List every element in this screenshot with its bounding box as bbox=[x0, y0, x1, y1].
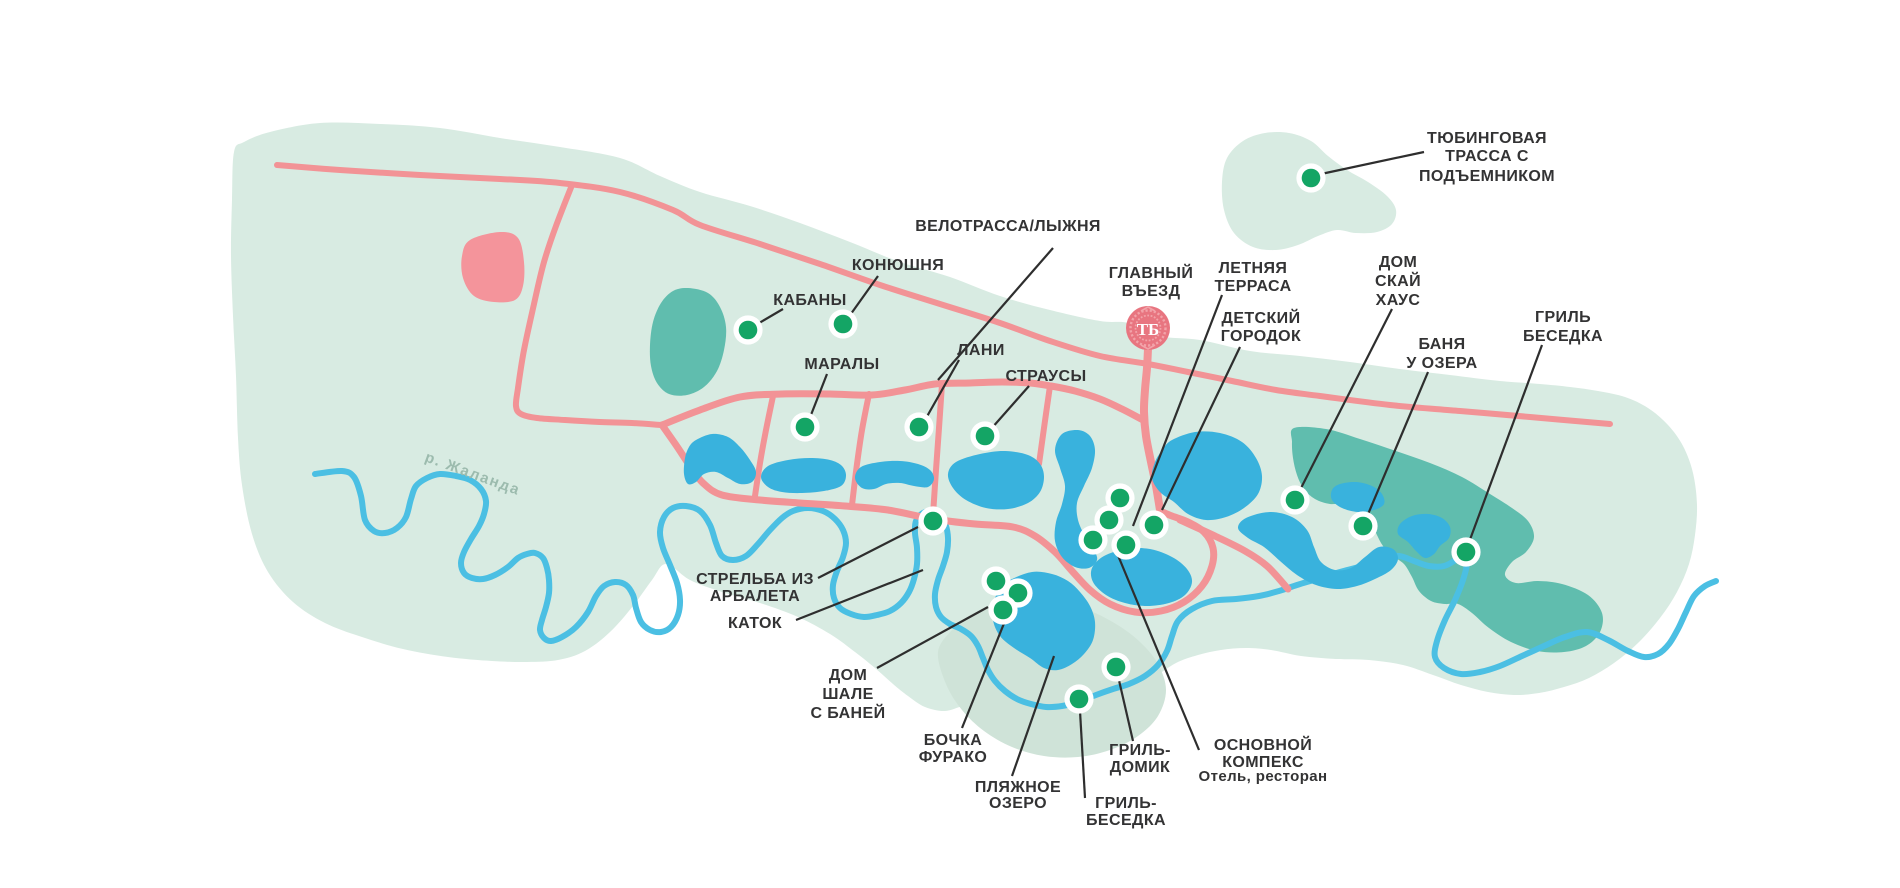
svg-text:ГРИЛЬ-: ГРИЛЬ- bbox=[1109, 742, 1171, 759]
svg-text:ВЪЕЗД: ВЪЕЗД bbox=[1122, 283, 1181, 300]
svg-text:ТБ: ТБ bbox=[1137, 320, 1160, 339]
svg-text:БАНЯ: БАНЯ bbox=[1418, 336, 1465, 353]
svg-text:ФУРАКО: ФУРАКО bbox=[919, 749, 987, 766]
svg-text:ГЛАВНЫЙ: ГЛАВНЫЙ bbox=[1109, 263, 1194, 282]
svg-text:ОЗЕРО: ОЗЕРО bbox=[989, 795, 1047, 812]
svg-text:ГОРОДОК: ГОРОДОК bbox=[1221, 328, 1301, 345]
svg-text:СКАЙ: СКАЙ bbox=[1375, 271, 1421, 290]
svg-text:ЛАНИ: ЛАНИ bbox=[957, 342, 1004, 359]
svg-text:БОЧКА: БОЧКА bbox=[924, 732, 983, 749]
svg-text:СТРЕЛЬБА ИЗ: СТРЕЛЬБА ИЗ bbox=[696, 571, 814, 588]
svg-text:С БАНЕЙ: С БАНЕЙ bbox=[811, 703, 886, 722]
svg-text:КАБАНЫ: КАБАНЫ bbox=[773, 292, 846, 309]
svg-text:ХАУС: ХАУС bbox=[1376, 292, 1421, 309]
svg-text:ОСНОВНОЙ: ОСНОВНОЙ bbox=[1214, 735, 1312, 754]
svg-text:ТЕРРАСА: ТЕРРАСА bbox=[1214, 278, 1291, 295]
svg-text:ДОМИК: ДОМИК bbox=[1110, 759, 1170, 776]
svg-text:ГРИЛЬ: ГРИЛЬ bbox=[1535, 309, 1591, 326]
svg-text:ПЛЯЖНОЕ: ПЛЯЖНОЕ bbox=[975, 779, 1061, 796]
svg-text:ВЕЛОТРАССА/ЛЫЖНЯ: ВЕЛОТРАССА/ЛЫЖНЯ bbox=[915, 218, 1101, 235]
svg-text:МАРАЛЫ: МАРАЛЫ bbox=[804, 356, 879, 373]
svg-text:Отель, ресторан: Отель, ресторан bbox=[1199, 768, 1328, 785]
svg-text:ГРИЛЬ-: ГРИЛЬ- bbox=[1095, 795, 1157, 812]
svg-text:АРБАЛЕТА: АРБАЛЕТА bbox=[710, 588, 800, 605]
svg-text:ПОДЪЕМНИКОМ: ПОДЪЕМНИКОМ bbox=[1419, 168, 1555, 185]
svg-text:ДОМ: ДОМ bbox=[1379, 254, 1417, 271]
svg-text:ДОМ: ДОМ bbox=[829, 667, 867, 684]
svg-text:БЕСЕДКА: БЕСЕДКА bbox=[1086, 812, 1166, 829]
svg-text:У ОЗЕРА: У ОЗЕРА bbox=[1406, 355, 1477, 372]
svg-text:ЛЕТНЯЯ: ЛЕТНЯЯ bbox=[1219, 260, 1288, 277]
svg-text:КАТОК: КАТОК bbox=[728, 615, 782, 632]
svg-text:ДЕТСКИЙ: ДЕТСКИЙ bbox=[1222, 308, 1301, 327]
svg-text:ТЮБИНГОВАЯ: ТЮБИНГОВАЯ bbox=[1427, 130, 1547, 147]
svg-text:БЕСЕДКА: БЕСЕДКА bbox=[1523, 328, 1603, 345]
svg-text:ТРАССА С: ТРАССА С bbox=[1445, 148, 1529, 165]
svg-text:СТРАУСЫ: СТРАУСЫ bbox=[1005, 368, 1086, 385]
svg-text:КОНЮШНЯ: КОНЮШНЯ bbox=[852, 257, 944, 274]
svg-text:ШАЛЕ: ШАЛЕ bbox=[822, 686, 873, 703]
